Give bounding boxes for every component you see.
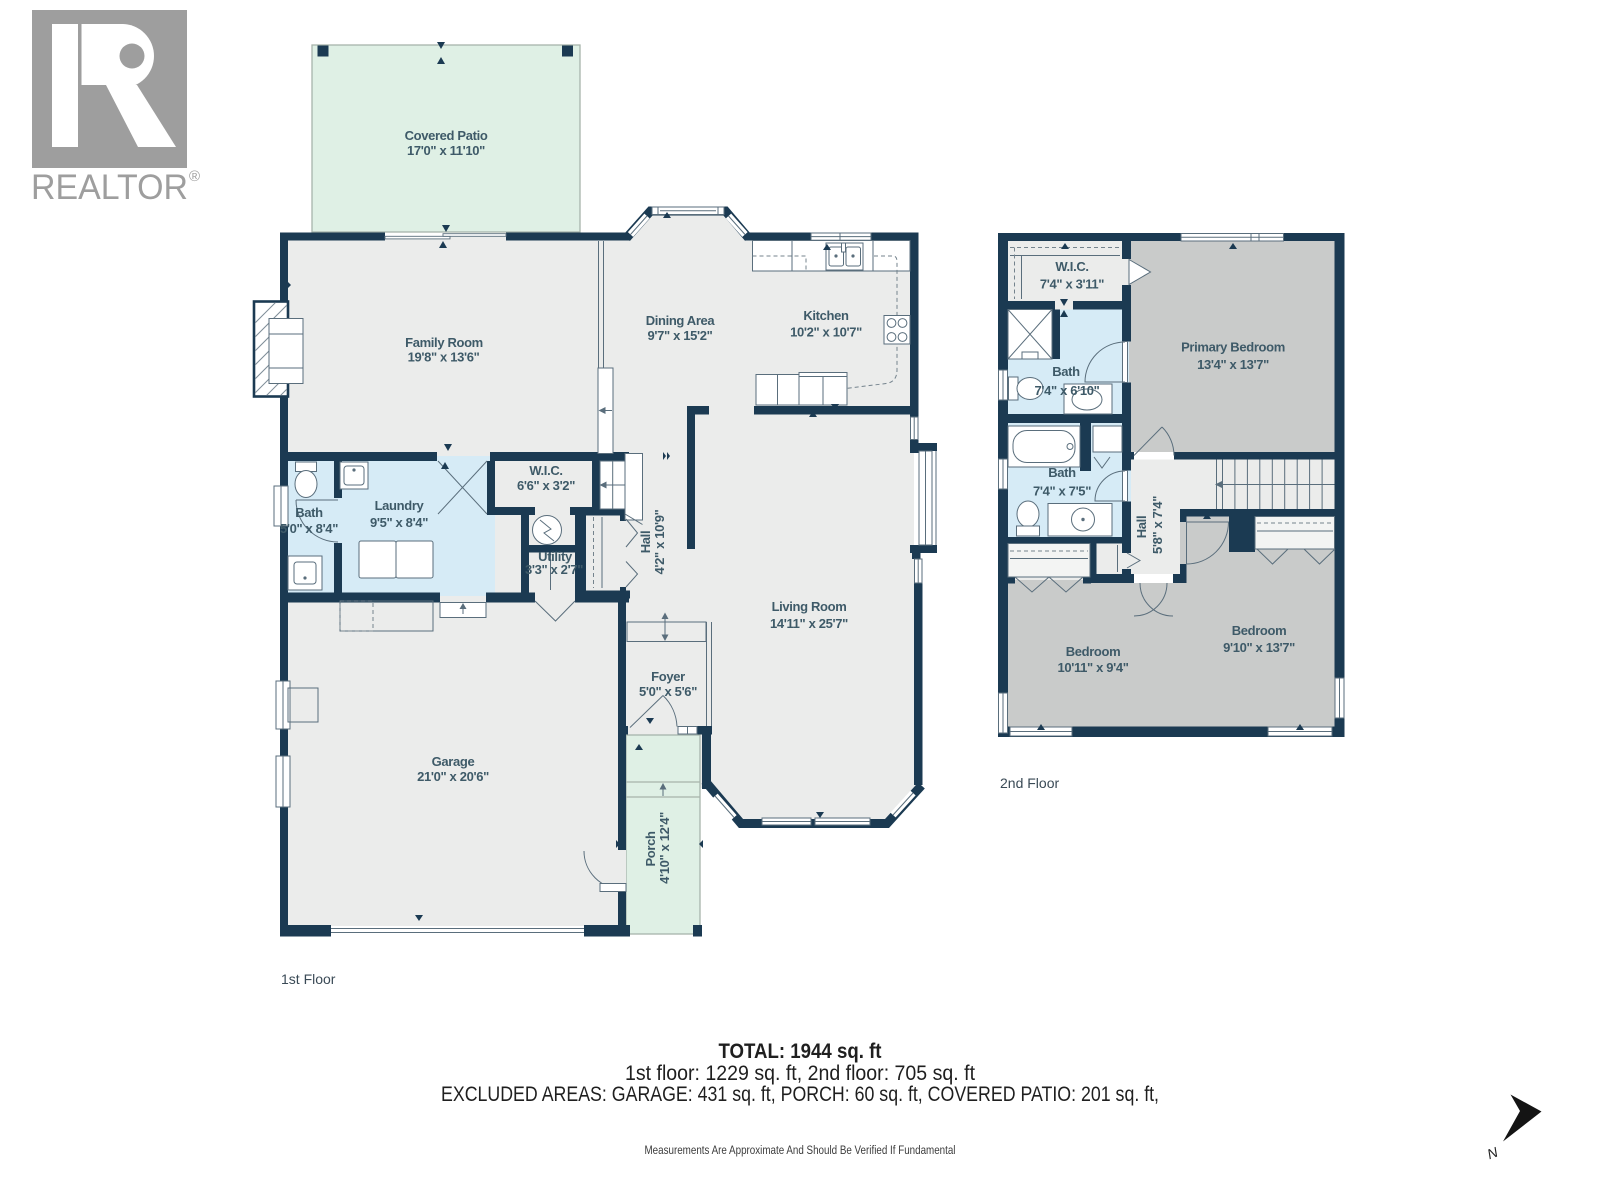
svg-text:Bath: Bath (295, 505, 323, 520)
svg-text:Bedroom: Bedroom (1232, 623, 1287, 638)
svg-text:W.I.C.: W.I.C. (529, 463, 562, 478)
svg-text:5'8" x 7'4": 5'8" x 7'4" (1150, 496, 1165, 554)
svg-text:7'4" x 6'10": 7'4" x 6'10" (1035, 383, 1100, 398)
svg-text:Hall: Hall (638, 531, 653, 553)
svg-text:10'2" x 10'7": 10'2" x 10'7" (790, 325, 862, 340)
svg-text:Bath: Bath (1048, 465, 1076, 480)
svg-text:Kitchen: Kitchen (803, 308, 849, 323)
svg-text:Garage: Garage (432, 754, 475, 769)
svg-text:Bedroom: Bedroom (1066, 644, 1121, 659)
svg-text:W.I.C.: W.I.C. (1055, 259, 1088, 274)
svg-text:1st floor: 1229 sq. ft, 2nd f: 1st floor: 1229 sq. ft, 2nd floor: 705 s… (625, 1062, 975, 1085)
svg-text:7'4" x 3'11": 7'4" x 3'11" (1040, 277, 1104, 292)
svg-text:2nd Floor: 2nd Floor (1000, 775, 1059, 791)
svg-text:Measurements Are Approximate A: Measurements Are Approximate And Should … (645, 1143, 956, 1157)
svg-text:3'3" x 2'7": 3'3" x 2'7" (525, 562, 583, 577)
svg-text:Foyer: Foyer (651, 669, 685, 684)
svg-text:EXCLUDED AREAS: GARAGE: 431 sq: EXCLUDED AREAS: GARAGE: 431 sq. ft, PORC… (441, 1083, 1159, 1106)
svg-text:13'4" x 13'7": 13'4" x 13'7" (1197, 357, 1269, 372)
svg-text:Dining Area: Dining Area (646, 313, 716, 328)
svg-text:Primary Bedroom: Primary Bedroom (1181, 340, 1285, 355)
svg-text:7'4" x 7'5": 7'4" x 7'5" (1033, 484, 1091, 499)
svg-text:6'6" x 3'2": 6'6" x 3'2" (517, 478, 575, 493)
svg-text:14'11" x 25'7": 14'11" x 25'7" (770, 616, 848, 631)
svg-text:4'2" x 10'9": 4'2" x 10'9" (652, 509, 667, 574)
svg-text:Bath: Bath (1052, 364, 1080, 379)
svg-text:Hall: Hall (1134, 516, 1149, 538)
svg-text:REALTOR: REALTOR (31, 168, 188, 207)
svg-text:5'0" x 8'4": 5'0" x 8'4" (280, 521, 338, 536)
svg-text:®: ® (189, 168, 200, 185)
svg-text:4'10" x 12'4": 4'10" x 12'4" (657, 812, 672, 884)
svg-text:5'0" x 5'6": 5'0" x 5'6" (639, 684, 697, 699)
svg-text:TOTAL: 1944 sq. ft: TOTAL: 1944 sq. ft (719, 1040, 882, 1063)
svg-text:9'5" x 8'4": 9'5" x 8'4" (370, 515, 428, 530)
svg-text:17'0" x 11'10": 17'0" x 11'10" (407, 143, 485, 158)
svg-text:Laundry: Laundry (375, 498, 425, 513)
svg-text:9'10" x 13'7": 9'10" x 13'7" (1223, 640, 1295, 655)
svg-text:10'11" x 9'4": 10'11" x 9'4" (1057, 660, 1128, 675)
svg-text:Covered Patio: Covered Patio (405, 128, 488, 143)
svg-text:Family Room: Family Room (405, 335, 483, 350)
svg-text:1st Floor: 1st Floor (281, 971, 336, 987)
svg-text:19'8" x 13'6": 19'8" x 13'6" (408, 350, 480, 365)
svg-text:Living Room: Living Room (772, 599, 847, 614)
svg-text:21'0" x 20'6": 21'0" x 20'6" (417, 769, 489, 784)
svg-text:Porch: Porch (643, 831, 658, 867)
svg-text:9'7" x 15'2": 9'7" x 15'2" (648, 328, 713, 343)
